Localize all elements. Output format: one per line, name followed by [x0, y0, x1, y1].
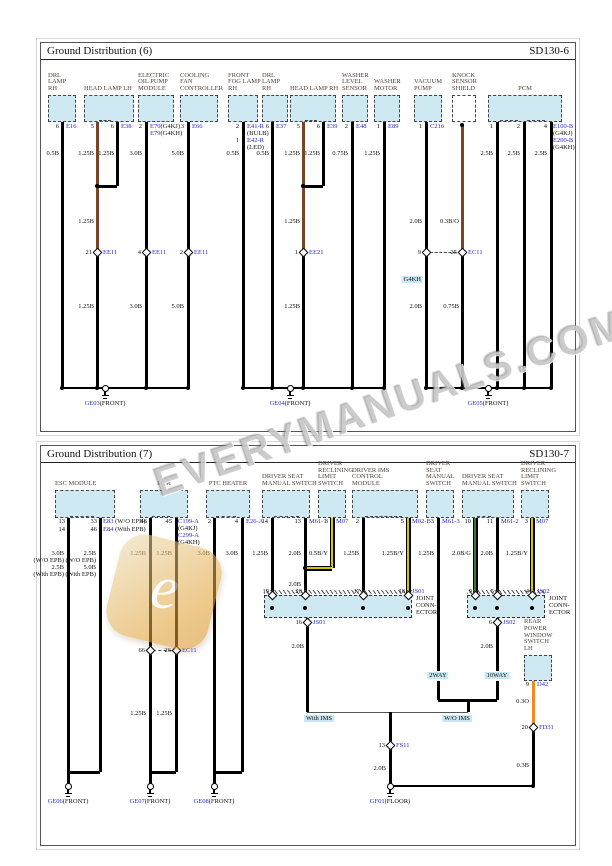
- wire-label: 1.25B: [78, 218, 94, 225]
- wire-dot: [382, 386, 386, 390]
- wire-label: 14: [59, 526, 66, 533]
- wire: [61, 122, 64, 388]
- wire: [305, 566, 332, 571]
- wire: [496, 518, 499, 595]
- wire-dot: [95, 386, 99, 390]
- wire-label: 2.0B: [289, 550, 301, 557]
- dash-link: [274, 516, 299, 517]
- connector-label: E89: [388, 123, 398, 130]
- junction-pin: 66: [139, 647, 146, 654]
- wire-label: 6: [317, 123, 320, 130]
- junction-pin: 25: [451, 249, 458, 256]
- wire-label: 1: [419, 123, 422, 130]
- wire-label: 0.3O: [516, 698, 529, 705]
- wire-label: 0.5B/Y: [309, 550, 328, 557]
- wire-label: 13: [59, 518, 66, 525]
- component-box: [262, 95, 288, 122]
- ground-bar: [211, 793, 218, 794]
- wire: [406, 518, 411, 595]
- ground-bar: [388, 796, 392, 797]
- connector-label: C199-A: [178, 518, 199, 525]
- wire: [438, 699, 468, 702]
- wire: [523, 122, 526, 388]
- wire: [271, 518, 274, 595]
- ground-label: GE08(FRONT): [194, 798, 235, 805]
- wire-label: 0.5B: [257, 150, 269, 157]
- component-name: PCM: [157, 481, 171, 488]
- wire-label: 4: [526, 588, 529, 595]
- component-box: [426, 490, 454, 518]
- diagram-code: SD130-6: [529, 45, 569, 57]
- wire: [390, 785, 533, 787]
- connector-label: E39: [327, 123, 337, 130]
- wire-dot: [241, 386, 245, 390]
- component-box: [48, 95, 76, 122]
- wire-label: 1.25B: [284, 150, 300, 157]
- wire-label: 1.25B: [284, 218, 300, 225]
- component-name: DRIVER SEAT MANUAL SWITCH: [426, 461, 455, 488]
- wire-label: 3: [325, 518, 328, 525]
- wire-label: 2.5B: [84, 550, 96, 557]
- dash-link: [216, 516, 236, 517]
- wire: [243, 387, 384, 389]
- component-name: PCM: [518, 86, 532, 93]
- wire-label: 5: [401, 518, 404, 525]
- wire-label: 1.25B/Y: [506, 550, 528, 557]
- wire-label: 20: [296, 588, 303, 595]
- connector-label: JS01: [412, 588, 425, 595]
- component-name: HEAD LAMP LH: [84, 86, 132, 93]
- wire-label: 1.25B: [78, 150, 94, 157]
- wire-label: 3.0B: [52, 550, 64, 557]
- wire-label: 1.25B: [130, 710, 146, 717]
- wire-label: 1.25B: [418, 550, 434, 557]
- wire: [62, 387, 188, 389]
- junction-connector-label: EE21: [309, 249, 323, 256]
- highlight-label: With IMS: [304, 715, 334, 722]
- wire-label: 45: [166, 518, 173, 525]
- junction-pin: 2: [180, 249, 183, 256]
- junction-pin: 4: [138, 249, 141, 256]
- component-box: [352, 490, 418, 518]
- wire-label: 1: [377, 123, 380, 130]
- wire-label: 33: [91, 518, 98, 525]
- wire-dot: [495, 606, 499, 610]
- ground-label: GE04(FRONT): [270, 400, 311, 407]
- wire-dot: [270, 386, 274, 390]
- wire: [437, 681, 440, 700]
- wire-label: (W/O EPB): [33, 557, 64, 564]
- wire-label: 4: [544, 123, 547, 130]
- wire-label: (G4KJ): [178, 525, 198, 532]
- ground-bar: [147, 793, 154, 794]
- wire-label: 1.25B: [252, 550, 268, 557]
- ground-label: GF01(FLOOR): [370, 798, 410, 805]
- wire: [214, 771, 242, 774]
- wire-dot: [424, 386, 428, 390]
- wire-label: 2: [139, 123, 142, 130]
- component-name: HEAD LAMP RH: [290, 86, 338, 93]
- connector-label: E48: [356, 123, 366, 130]
- wire-dot: [303, 566, 307, 570]
- component-name: WASHER LEVEL SENSOR: [342, 73, 369, 93]
- wire: [550, 122, 553, 388]
- ground-bar: [102, 395, 109, 396]
- component-name: VACUUM PUMP: [414, 79, 442, 93]
- wire-dot: [549, 386, 553, 390]
- wire-dot: [301, 386, 305, 390]
- wire-label: 17: [354, 588, 361, 595]
- wire-label: 1.25B: [156, 710, 172, 717]
- connector-label: E200-B: [553, 137, 573, 144]
- component-box: [524, 655, 552, 681]
- component-name: WASHER MOTOR: [374, 79, 401, 93]
- wire-label: 10: [465, 518, 472, 525]
- dash-link: [500, 120, 518, 121]
- wire-label: (W/O EPB): [65, 557, 96, 564]
- highlight-label: 10WAY: [485, 672, 510, 679]
- wire-label: 5.0B: [172, 303, 184, 310]
- wire-dot: [473, 606, 477, 610]
- wire-label: 1.25B: [364, 150, 380, 157]
- ground-bar: [287, 395, 294, 396]
- connector-label: E42-R: [247, 137, 264, 144]
- wire: [532, 727, 535, 786]
- connector-label: M61-3: [442, 518, 460, 525]
- ground-bar: [65, 793, 72, 794]
- wire-label: 1.25B: [98, 150, 114, 157]
- wire: [150, 771, 176, 774]
- wire-dot: [270, 606, 274, 610]
- junction-connector-label: FD31: [539, 724, 554, 731]
- wire: [322, 122, 325, 186]
- connector-label: ECTOR: [549, 609, 570, 616]
- component-name: KNOCK SENSOR SHIELD: [452, 73, 477, 93]
- panel-header: Ground Distribution (7) SD130-7: [41, 446, 575, 463]
- wire: [467, 700, 470, 712]
- wire: [307, 712, 468, 713]
- component-box: [488, 95, 562, 122]
- connector-label: E37: [276, 123, 286, 130]
- wire: [241, 518, 244, 772]
- wire-label: 0.75B: [443, 303, 459, 310]
- wire: [461, 252, 464, 388]
- wire-label: 6: [266, 123, 269, 130]
- ground-bar: [288, 398, 292, 399]
- wire-label: (G4KJ): [553, 130, 573, 137]
- wire: [468, 699, 497, 702]
- wire-label: 0.3B: [517, 762, 529, 769]
- wire-label: 1.25B: [130, 550, 146, 557]
- wire-label: 3: [181, 123, 184, 130]
- wire: [96, 252, 99, 388]
- wire-label: 2.0B: [292, 643, 304, 650]
- diagram-code: SD130-7: [529, 448, 569, 460]
- connector-label: D42: [537, 681, 548, 688]
- junction-connector-label: EE11: [194, 249, 208, 256]
- component-name: PTC HEATER: [209, 481, 247, 488]
- component-box: [342, 95, 368, 122]
- connector-label: E100-B: [553, 123, 573, 130]
- component-name: REAR POWER WINDOW SWITCH LH: [524, 619, 553, 653]
- wire-label: 0.75B: [332, 150, 348, 157]
- junction-connector-label: EC11: [182, 647, 197, 654]
- component-box: [290, 95, 336, 122]
- wire-label: 1.25B: [284, 303, 300, 310]
- wire-label: 5.0B: [172, 150, 184, 157]
- connector-label: M07: [536, 518, 548, 525]
- junction-pin: 1: [295, 249, 298, 256]
- junction-pin: 16: [296, 619, 303, 626]
- wire-label: 2.5B: [535, 150, 547, 157]
- wire-label: 1.25B: [156, 550, 172, 557]
- component-box: [452, 95, 476, 122]
- wire-dot: [522, 386, 526, 390]
- wire-label: (G4KH): [178, 539, 200, 546]
- connector-label: E79(G4KH): [150, 130, 182, 137]
- wire-label: 0.3B/O: [440, 218, 459, 225]
- wire: [530, 518, 535, 595]
- component-box: [318, 490, 346, 518]
- junction-pin: 20: [522, 724, 529, 731]
- junction-pin: 13: [379, 742, 386, 749]
- wire-dot: [495, 386, 499, 390]
- wire-label: 6: [56, 123, 59, 130]
- ground-bar: [66, 796, 70, 797]
- wire-dot: [60, 386, 64, 390]
- wire-dot: [144, 386, 148, 390]
- junction-connector-label: JS02: [503, 619, 516, 626]
- connector-label: CONN-: [549, 602, 570, 609]
- component-name: DRIVER SEAT MANUAL SWITCH: [462, 474, 517, 488]
- wire-label: 5: [491, 588, 494, 595]
- dash-link: [527, 120, 545, 121]
- wire-label: 1: [236, 137, 239, 144]
- wire-label: 5: [91, 123, 94, 130]
- ground-label: GE05(FRONT): [468, 400, 509, 407]
- ground-label: GE06(FRONT): [48, 798, 89, 805]
- wire-label: 14: [262, 518, 269, 525]
- wire: [97, 185, 117, 188]
- dash-link: [477, 516, 491, 517]
- wire: [303, 185, 323, 188]
- connector-label: CONN-: [416, 602, 437, 609]
- wire-dot: [460, 123, 464, 127]
- wire-label: (G4KH): [553, 144, 575, 151]
- wire-label: 2.0B: [374, 765, 386, 772]
- wire-dot: [350, 386, 354, 390]
- connector-label: C299-A: [178, 532, 199, 539]
- component-name: COOLING FAN CONTROLLER: [180, 73, 223, 93]
- wire: [271, 122, 274, 388]
- component-box: [55, 490, 115, 518]
- diagram-title: Ground Distribution (6): [47, 45, 152, 57]
- wire-label: 19: [263, 588, 270, 595]
- wire: [302, 252, 305, 388]
- wire-label: 9: [469, 588, 472, 595]
- wire-label: 13: [295, 518, 302, 525]
- junction-connector-label: EC11: [468, 249, 483, 256]
- wire-label: 2: [236, 123, 239, 130]
- wire: [116, 122, 119, 186]
- wire-label: 1.25B: [304, 150, 320, 157]
- connector-label: E84 (With EPB): [103, 526, 146, 533]
- connector-label: ECTOR: [416, 609, 437, 616]
- component-name: DRIVER RECLINING LIMIT SWITCH: [318, 461, 353, 488]
- dash-link: [152, 516, 170, 517]
- wire: [213, 518, 216, 786]
- wire-label: 46: [141, 518, 148, 525]
- connector-label: E16: [66, 123, 76, 130]
- component-box: [521, 490, 549, 518]
- dash-link: [305, 120, 317, 121]
- component-box: [180, 95, 218, 122]
- wire-label: 2.0B: [410, 303, 422, 310]
- component-box: [140, 490, 188, 518]
- wire-dot: [303, 606, 307, 610]
- wire-label: 3.0B: [226, 550, 238, 557]
- component-name: DRIVER SEAT MANUAL SWITCH: [262, 474, 317, 488]
- wire-label: 18: [399, 588, 406, 595]
- wire: [362, 518, 365, 595]
- wire-label: 2: [517, 123, 520, 130]
- wire-label: 3: [525, 518, 528, 525]
- component-box: [374, 95, 400, 122]
- connector-label: E70(G4KJ): [150, 123, 180, 130]
- component-name: DRL LAMP RH: [48, 73, 66, 93]
- wire-label: 11: [487, 518, 493, 525]
- wire-label: 0.5B: [47, 150, 59, 157]
- dash-link: [365, 516, 402, 517]
- component-box: [262, 490, 310, 518]
- junction-connector-label: EE11: [152, 249, 166, 256]
- dash-link: [70, 516, 94, 517]
- component-name: DRL LAMP RH: [262, 73, 280, 93]
- wire-label: 2: [208, 518, 211, 525]
- connector-label: M61-2: [501, 518, 519, 525]
- wire-label: 3.0B: [130, 303, 142, 310]
- wire: [351, 122, 354, 388]
- junction-pin: 6: [489, 619, 492, 626]
- wire: [330, 518, 335, 568]
- ground-bar: [103, 398, 107, 399]
- wire-label: 2.0B: [481, 643, 493, 650]
- component-box: [462, 490, 514, 518]
- connector-label: M07: [336, 518, 348, 525]
- wire-label: 46: [91, 526, 98, 533]
- wire-label: 2: [356, 518, 359, 525]
- connector-label: E66: [192, 123, 202, 130]
- wire-label: 2.0B: [410, 218, 422, 225]
- wire-label: 1.25B: [78, 303, 94, 310]
- ground-bar: [212, 796, 216, 797]
- junction-connector-label: JS01: [313, 619, 326, 626]
- diagram-title: Ground Distribution (7): [47, 448, 152, 460]
- wire: [496, 681, 499, 700]
- wire-dot: [301, 184, 305, 188]
- connector-label: JS02: [537, 588, 550, 595]
- wire-label: (With EPB): [33, 571, 64, 578]
- connector-label: C216: [430, 123, 444, 130]
- wire-label: 2.0B: [481, 550, 493, 557]
- ground-bar: [485, 395, 492, 396]
- panel-header: Ground Distribution (6) SD130-6: [41, 43, 575, 60]
- wire: [532, 681, 535, 727]
- highlight-label: 2WAY: [427, 672, 448, 679]
- highlight-label: G4KH: [402, 276, 423, 283]
- wire-label: 2.0B/G: [452, 550, 471, 557]
- connector-label: E41-R: [247, 123, 264, 130]
- wire: [473, 518, 478, 595]
- wire-dot: [406, 606, 410, 610]
- highlight-label: W/O IMS: [442, 715, 472, 722]
- wire: [68, 771, 100, 774]
- junction-connector-label: FS11: [396, 742, 410, 749]
- wire-label: 6: [111, 123, 114, 130]
- wire-label: 2: [345, 123, 348, 130]
- wire-label: 2.5B: [52, 564, 64, 571]
- wire-label: 4: [235, 518, 238, 525]
- joint-connector-hatch: [264, 590, 412, 594]
- component-box: [228, 95, 258, 122]
- wire-label: 1.25B/Y: [382, 550, 404, 557]
- connector-label: E83 (W/O EPB): [103, 518, 146, 525]
- wire: [99, 518, 102, 772]
- wire: [437, 518, 440, 671]
- wire-label: 2.5B: [481, 150, 493, 157]
- wire-label: 2.5B: [508, 150, 520, 157]
- connector-label: JOINT: [416, 595, 434, 602]
- ground-bar: [148, 796, 152, 797]
- wire-dot: [361, 606, 365, 610]
- wire-label: 0.5B: [227, 150, 239, 157]
- connector-label: E38: [121, 123, 131, 130]
- dash-link: [99, 120, 111, 121]
- wire: [383, 122, 386, 388]
- wire-dot: [530, 606, 534, 610]
- junction-pin: 26: [165, 647, 172, 654]
- ground-label: GE07(FRONT): [130, 798, 171, 805]
- wire-dot: [460, 386, 464, 390]
- wire-label: 1: [490, 123, 493, 130]
- component-name: DRIVER IMS CONTROL MODULE: [352, 468, 389, 488]
- wire: [306, 618, 309, 712]
- wire-dot: [186, 386, 190, 390]
- ground-label: GE03(FRONT): [85, 400, 126, 407]
- component-name: ELECTRIC OIL PUMP MODULE: [138, 73, 169, 93]
- joint-connector-box: [264, 595, 412, 618]
- wire-dot: [95, 184, 99, 188]
- connector-label: JOINT: [549, 595, 567, 602]
- component-box: [84, 95, 134, 122]
- manual-page: Ground Distribution (6) SD130-6 Ground D…: [0, 0, 612, 866]
- wire-label: (BULB): [247, 130, 269, 137]
- wire-label: 3.0B: [130, 150, 142, 157]
- component-name: ESC MODULE: [55, 481, 96, 488]
- ground-bar: [486, 398, 490, 399]
- wire: [242, 122, 245, 388]
- wire-label: 9: [526, 681, 529, 688]
- junction-pin: 9: [418, 249, 421, 256]
- ground-bar: [387, 793, 394, 794]
- component-name: DRIVER RECLINING LIMIT SWITCH: [521, 461, 556, 488]
- wire-label: 5.0B: [84, 564, 96, 571]
- component-box: [206, 490, 250, 518]
- wire-label: 5: [297, 123, 300, 130]
- wire-label: 3.0B: [198, 550, 210, 557]
- component-name: FRONT FOG LAMP RH: [228, 73, 261, 93]
- junction-connector-label: EE11: [103, 249, 117, 256]
